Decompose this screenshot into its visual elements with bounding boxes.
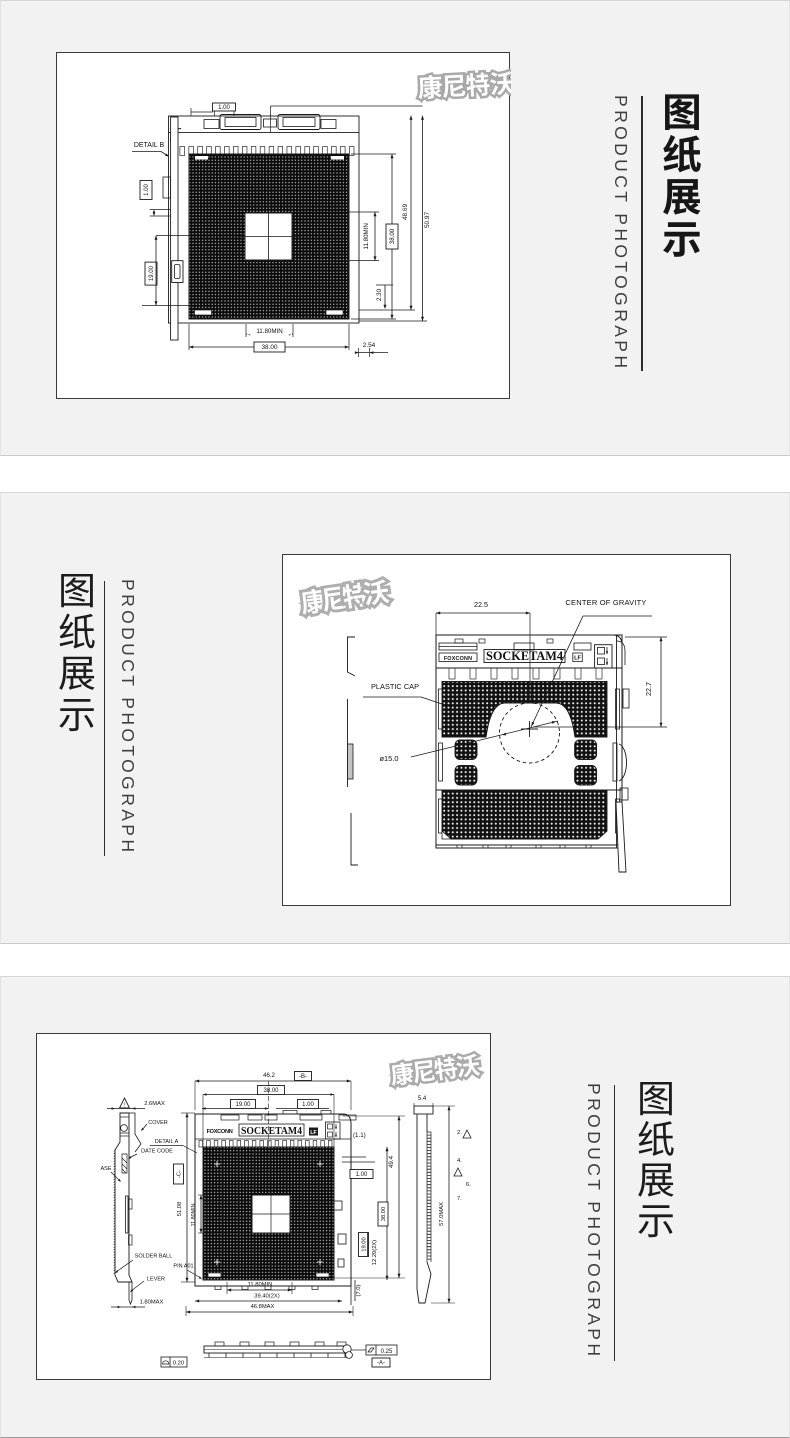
svg-text:CENTER OF GRAVITY: CENTER OF GRAVITY (565, 598, 646, 607)
svg-text:22.5: 22.5 (474, 600, 488, 609)
svg-text:46.2: 46.2 (263, 1073, 275, 1079)
svg-text:2.54: 2.54 (363, 342, 376, 349)
svg-text:57.0MAX: 57.0MAX (439, 1202, 445, 1226)
svg-text:38.00: 38.00 (262, 344, 278, 351)
svg-text:4.: 4. (457, 1158, 462, 1164)
svg-text:0.25: 0.25 (381, 1349, 393, 1355)
svg-text:ASE: ASE (100, 1166, 111, 1172)
svg-text:38.00: 38.00 (381, 1207, 387, 1222)
svg-text:DATE CODE: DATE CODE (141, 1149, 173, 1155)
svg-text:DETAIL B: DETAIL B (134, 142, 165, 149)
svg-text:11.80MIN: 11.80MIN (363, 223, 370, 249)
svg-text:!: ! (124, 1103, 125, 1109)
svg-text:PLASTIC CAP: PLASTIC CAP (371, 682, 419, 691)
svg-text:-B-: -B- (299, 1074, 307, 1080)
svg-text:COVER: COVER (148, 1120, 168, 1126)
svg-text:SOCKETAM4: SOCKETAM4 (241, 1126, 303, 1137)
svg-text:(7.0): (7.0) (356, 1284, 362, 1296)
svg-text:1.80MAX: 1.80MAX (140, 1300, 164, 1306)
svg-text:46.8MAX: 46.8MAX (251, 1304, 275, 1310)
svg-text:LEVER: LEVER (147, 1277, 165, 1283)
svg-text:5.4: 5.4 (418, 1096, 427, 1102)
svg-text:1.00: 1.00 (356, 1172, 368, 1178)
svg-text:51.08: 51.08 (177, 1202, 183, 1217)
svg-text:38.00: 38.00 (263, 1088, 279, 1094)
svg-text:11.80MIN: 11.80MIN (256, 328, 282, 335)
svg-text:LF: LF (310, 1130, 316, 1136)
svg-text:49.4: 49.4 (388, 1155, 395, 1168)
svg-text:6.: 6. (466, 1182, 471, 1188)
svg-text:50.97: 50.97 (424, 212, 431, 228)
svg-text:0.20: 0.20 (173, 1361, 184, 1367)
svg-text:19.00: 19.00 (149, 265, 155, 281)
svg-text:PIN A01: PIN A01 (173, 1264, 193, 1270)
svg-text:19.00: 19.00 (362, 1237, 368, 1252)
svg-text:SOLDER BALL: SOLDER BALL (135, 1254, 173, 1260)
svg-text:2.6MAX: 2.6MAX (144, 1101, 165, 1107)
svg-text:SOCKETAM4: SOCKETAM4 (486, 649, 564, 663)
svg-text:1.00: 1.00 (302, 1102, 314, 1108)
svg-text:ø15.0: ø15.0 (380, 754, 399, 763)
svg-text:FOXCONN: FOXCONN (207, 1129, 233, 1135)
svg-text:DETAIL A: DETAIL A (155, 1139, 179, 1145)
svg-text:19.00: 19.00 (235, 1102, 251, 1108)
svg-text:2.: 2. (457, 1130, 462, 1136)
svg-text:-C-: -C- (177, 1170, 183, 1178)
svg-text:48.69: 48.69 (402, 204, 409, 220)
svg-text:7.: 7. (457, 1196, 462, 1202)
svg-text:38.00: 38.00 (389, 228, 396, 244)
svg-text:(1.1): (1.1) (353, 1132, 366, 1139)
svg-text:LF: LF (574, 656, 581, 662)
svg-text:FOXCONN: FOXCONN (444, 656, 472, 662)
svg-text:-A-: -A- (377, 1361, 385, 1367)
svg-text:2.30: 2.30 (376, 288, 383, 301)
svg-text:22.7: 22.7 (644, 682, 653, 696)
svg-text:1.00: 1.00 (144, 184, 150, 196)
svg-text:12.20(2X): 12.20(2X) (372, 1240, 378, 1266)
svg-text:39.40(2X): 39.40(2X) (254, 1294, 280, 1300)
svg-text:11.80MIN: 11.80MIN (248, 1282, 273, 1288)
svg-text:11.80MIN: 11.80MIN (191, 1203, 197, 1226)
svg-text:1.00: 1.00 (218, 105, 230, 111)
